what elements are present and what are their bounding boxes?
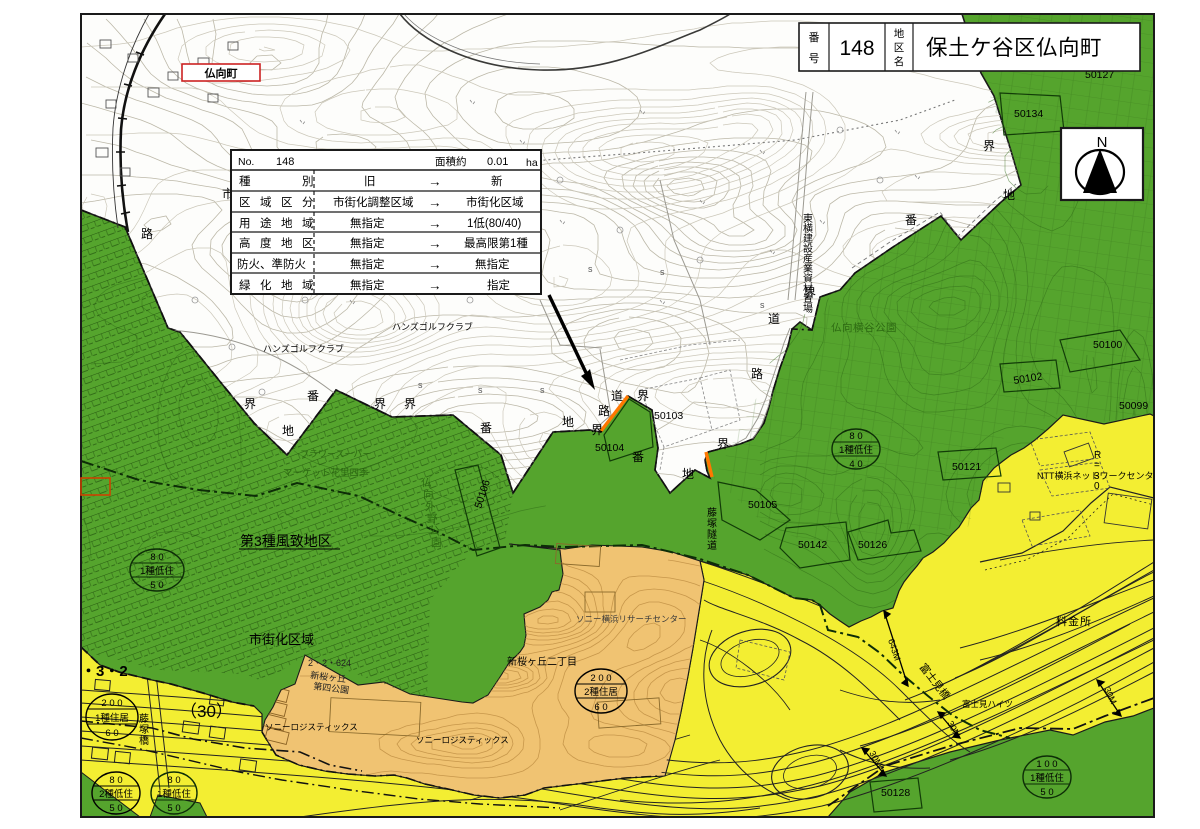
svg-text:新桜ヶ丘二丁目: 新桜ヶ丘二丁目: [507, 655, 577, 668]
svg-text:2種住居: 2種住居: [584, 686, 618, 698]
svg-text:→: →: [428, 278, 442, 293]
svg-text:界: 界: [374, 397, 386, 411]
svg-text:地: 地: [894, 27, 905, 40]
svg-text:0.01: 0.01: [487, 156, 508, 168]
svg-text:無指定: 無指定: [350, 278, 385, 292]
svg-text:最高限第1種: 最高限第1種: [464, 236, 528, 250]
svg-text:界: 界: [637, 389, 649, 403]
svg-text:フラワースーパー: フラワースーパー: [300, 449, 371, 459]
svg-text:ハンズゴルフクラブ: ハンズゴルフクラブ: [263, 343, 344, 354]
svg-text:界: 界: [591, 423, 603, 437]
svg-text:途: 途: [260, 216, 272, 230]
svg-text:1種低住: 1種低住: [1030, 772, 1064, 784]
svg-text:無指定: 無指定: [475, 257, 510, 271]
svg-text:→: →: [428, 216, 442, 231]
svg-text:番: 番: [905, 213, 917, 227]
svg-text:度: 度: [260, 236, 272, 250]
svg-text:番: 番: [809, 31, 820, 44]
svg-text:地: 地: [281, 217, 293, 230]
svg-text:s: s: [418, 380, 423, 390]
svg-text:1低(80/40): 1低(80/40): [467, 217, 522, 230]
svg-text:路: 路: [141, 226, 153, 241]
svg-text:No.: No.: [238, 156, 254, 168]
svg-text:域: 域: [302, 217, 314, 230]
svg-text:地: 地: [281, 237, 293, 250]
svg-text:ha: ha: [526, 157, 538, 169]
svg-text:2 0 0: 2 0 0: [101, 698, 122, 709]
svg-text:5 0: 5 0: [109, 803, 122, 814]
svg-text:148: 148: [276, 156, 294, 168]
svg-text:指定: 指定: [487, 278, 510, 292]
svg-text:無指定: 無指定: [350, 257, 385, 271]
svg-text:野: 野: [427, 513, 438, 525]
svg-text:外: 外: [425, 501, 436, 513]
svg-text:向: 向: [423, 488, 434, 501]
svg-text:50100: 50100: [1093, 339, 1122, 351]
svg-text:無指定: 無指定: [350, 216, 385, 230]
svg-text:s: s: [760, 300, 765, 310]
svg-text:50103: 50103: [654, 410, 683, 422]
svg-text:1種低住: 1種低住: [140, 565, 174, 577]
svg-text:ソニー横浜リサーチセンター: ソニー横浜リサーチセンター: [576, 614, 687, 624]
svg-text:種: 種: [239, 174, 251, 188]
svg-text:界: 界: [244, 397, 256, 411]
svg-text:面積約: 面積約: [435, 155, 467, 168]
svg-text:148: 148: [839, 37, 874, 60]
svg-text:用: 用: [239, 218, 251, 230]
svg-text:別: 別: [302, 175, 314, 188]
svg-text:→: →: [428, 236, 442, 251]
svg-text:橋: 橋: [139, 734, 149, 747]
svg-text:50128: 50128: [881, 787, 910, 799]
svg-text:2 0 0: 2 0 0: [590, 673, 611, 684]
svg-text:5 0: 5 0: [167, 803, 180, 814]
svg-text:道: 道: [768, 312, 780, 326]
svg-text:8 0: 8 0: [109, 775, 122, 786]
svg-text:新: 新: [491, 174, 503, 188]
svg-text:隧: 隧: [707, 528, 717, 541]
svg-text:料金所: 料金所: [1056, 614, 1092, 628]
svg-text:5 0: 5 0: [150, 580, 163, 591]
svg-text:s: s: [540, 385, 545, 395]
svg-text:藤: 藤: [139, 713, 149, 725]
svg-text:地: 地: [682, 467, 694, 481]
svg-text:8 0: 8 0: [150, 552, 163, 563]
svg-text:防火、準防火: 防火、準防火: [237, 257, 306, 271]
svg-text:市街化区域: 市街化区域: [466, 195, 524, 209]
svg-text:地: 地: [1003, 188, 1015, 202]
svg-text:ハンズゴルフクラブ: ハンズゴルフクラブ: [392, 321, 473, 332]
svg-text:藤: 藤: [707, 507, 717, 519]
svg-text:8 0: 8 0: [167, 775, 180, 786]
svg-text:50104: 50104: [595, 442, 624, 454]
svg-text:地: 地: [282, 424, 294, 438]
svg-text:8 0: 8 0: [849, 431, 862, 442]
svg-text:番: 番: [632, 450, 644, 464]
svg-text:市街化調整区域: 市街化調整区域: [333, 195, 414, 209]
svg-text:s: s: [660, 267, 665, 277]
svg-text:仏向町: 仏向町: [205, 66, 238, 80]
svg-text:ソニーロジスティックス: ソニーロジスティックス: [265, 722, 358, 732]
svg-text:6 0: 6 0: [594, 702, 607, 713]
svg-text:旧: 旧: [364, 175, 376, 188]
svg-text:区: 区: [239, 197, 251, 209]
svg-text:域: 域: [260, 196, 272, 209]
svg-text:無指定: 無指定: [350, 236, 385, 250]
svg-text:5 0: 5 0: [1040, 787, 1053, 798]
svg-text:域: 域: [302, 279, 314, 292]
svg-text:→: →: [428, 195, 442, 210]
svg-text:50134: 50134: [1014, 108, 1043, 120]
svg-text:50121: 50121: [952, 461, 981, 473]
svg-text:名: 名: [894, 55, 905, 68]
svg-text:公: 公: [429, 525, 440, 537]
svg-text:号: 号: [809, 52, 820, 65]
svg-text:地: 地: [281, 279, 293, 292]
svg-text:1 0 0: 1 0 0: [1036, 759, 1057, 770]
svg-text:マーケット花里四季: マーケット花里四季: [283, 467, 369, 479]
svg-text:化: 化: [260, 278, 272, 292]
svg-text:2・2・624: 2・2・624: [308, 658, 351, 668]
svg-text:分: 分: [302, 196, 314, 209]
svg-text:仏: 仏: [421, 477, 432, 489]
svg-text:界: 界: [404, 397, 416, 411]
svg-text:地: 地: [562, 415, 574, 429]
svg-text:・3・2: ・3・2: [81, 663, 128, 680]
svg-text:塚: 塚: [139, 724, 149, 736]
svg-text:番: 番: [480, 421, 492, 435]
svg-text:富士見ハイツ: 富士見ハイツ: [962, 699, 1013, 709]
svg-text:保土ケ谷区仏向町: 保土ケ谷区仏向町: [926, 36, 1102, 60]
svg-text:4 0: 4 0: [849, 459, 862, 470]
svg-text:区: 区: [894, 42, 905, 54]
svg-text:2種低住: 2種低住: [99, 788, 133, 800]
svg-text:第3種風致地区: 第3種風致地区: [240, 533, 332, 549]
svg-text:区: 区: [281, 197, 293, 209]
svg-text:=: =: [1094, 460, 1100, 471]
svg-text:→: →: [428, 257, 442, 272]
svg-text:1種住居: 1種住居: [95, 712, 129, 724]
svg-text:界: 界: [717, 437, 729, 451]
svg-text:1種低住: 1種低住: [839, 444, 873, 456]
svg-text:s: s: [588, 264, 593, 274]
svg-text:区: 区: [302, 238, 314, 250]
svg-text:50126: 50126: [858, 539, 887, 551]
svg-text:仏向横谷公園: 仏向横谷公園: [831, 321, 897, 334]
svg-text:市街化区域: 市街化区域: [249, 632, 314, 647]
svg-text:園: 園: [431, 537, 442, 549]
svg-text:50099: 50099: [1119, 400, 1148, 412]
svg-text:界: 界: [983, 139, 995, 153]
svg-text:→: →: [428, 174, 442, 189]
svg-text:s: s: [478, 385, 483, 395]
svg-text:50105: 50105: [748, 499, 777, 511]
svg-text:番: 番: [307, 389, 319, 403]
svg-text:（30）: （30）: [180, 702, 233, 721]
svg-text:高: 高: [239, 236, 251, 250]
svg-text:塚: 塚: [707, 518, 717, 530]
svg-text:道: 道: [611, 389, 623, 403]
svg-text:ソニーロジスティックス: ソニーロジスティックス: [416, 735, 509, 745]
svg-text:0: 0: [1094, 481, 1100, 492]
svg-text:N: N: [1097, 134, 1108, 151]
svg-text:場: 場: [803, 302, 813, 315]
svg-text:緑: 緑: [239, 278, 251, 292]
svg-text:50142: 50142: [798, 539, 827, 551]
svg-text:道: 道: [707, 539, 717, 552]
svg-text:路: 路: [598, 403, 610, 418]
svg-text:1種低住: 1種低住: [157, 788, 191, 800]
svg-text:6 0: 6 0: [105, 728, 118, 739]
svg-text:路: 路: [751, 366, 763, 381]
